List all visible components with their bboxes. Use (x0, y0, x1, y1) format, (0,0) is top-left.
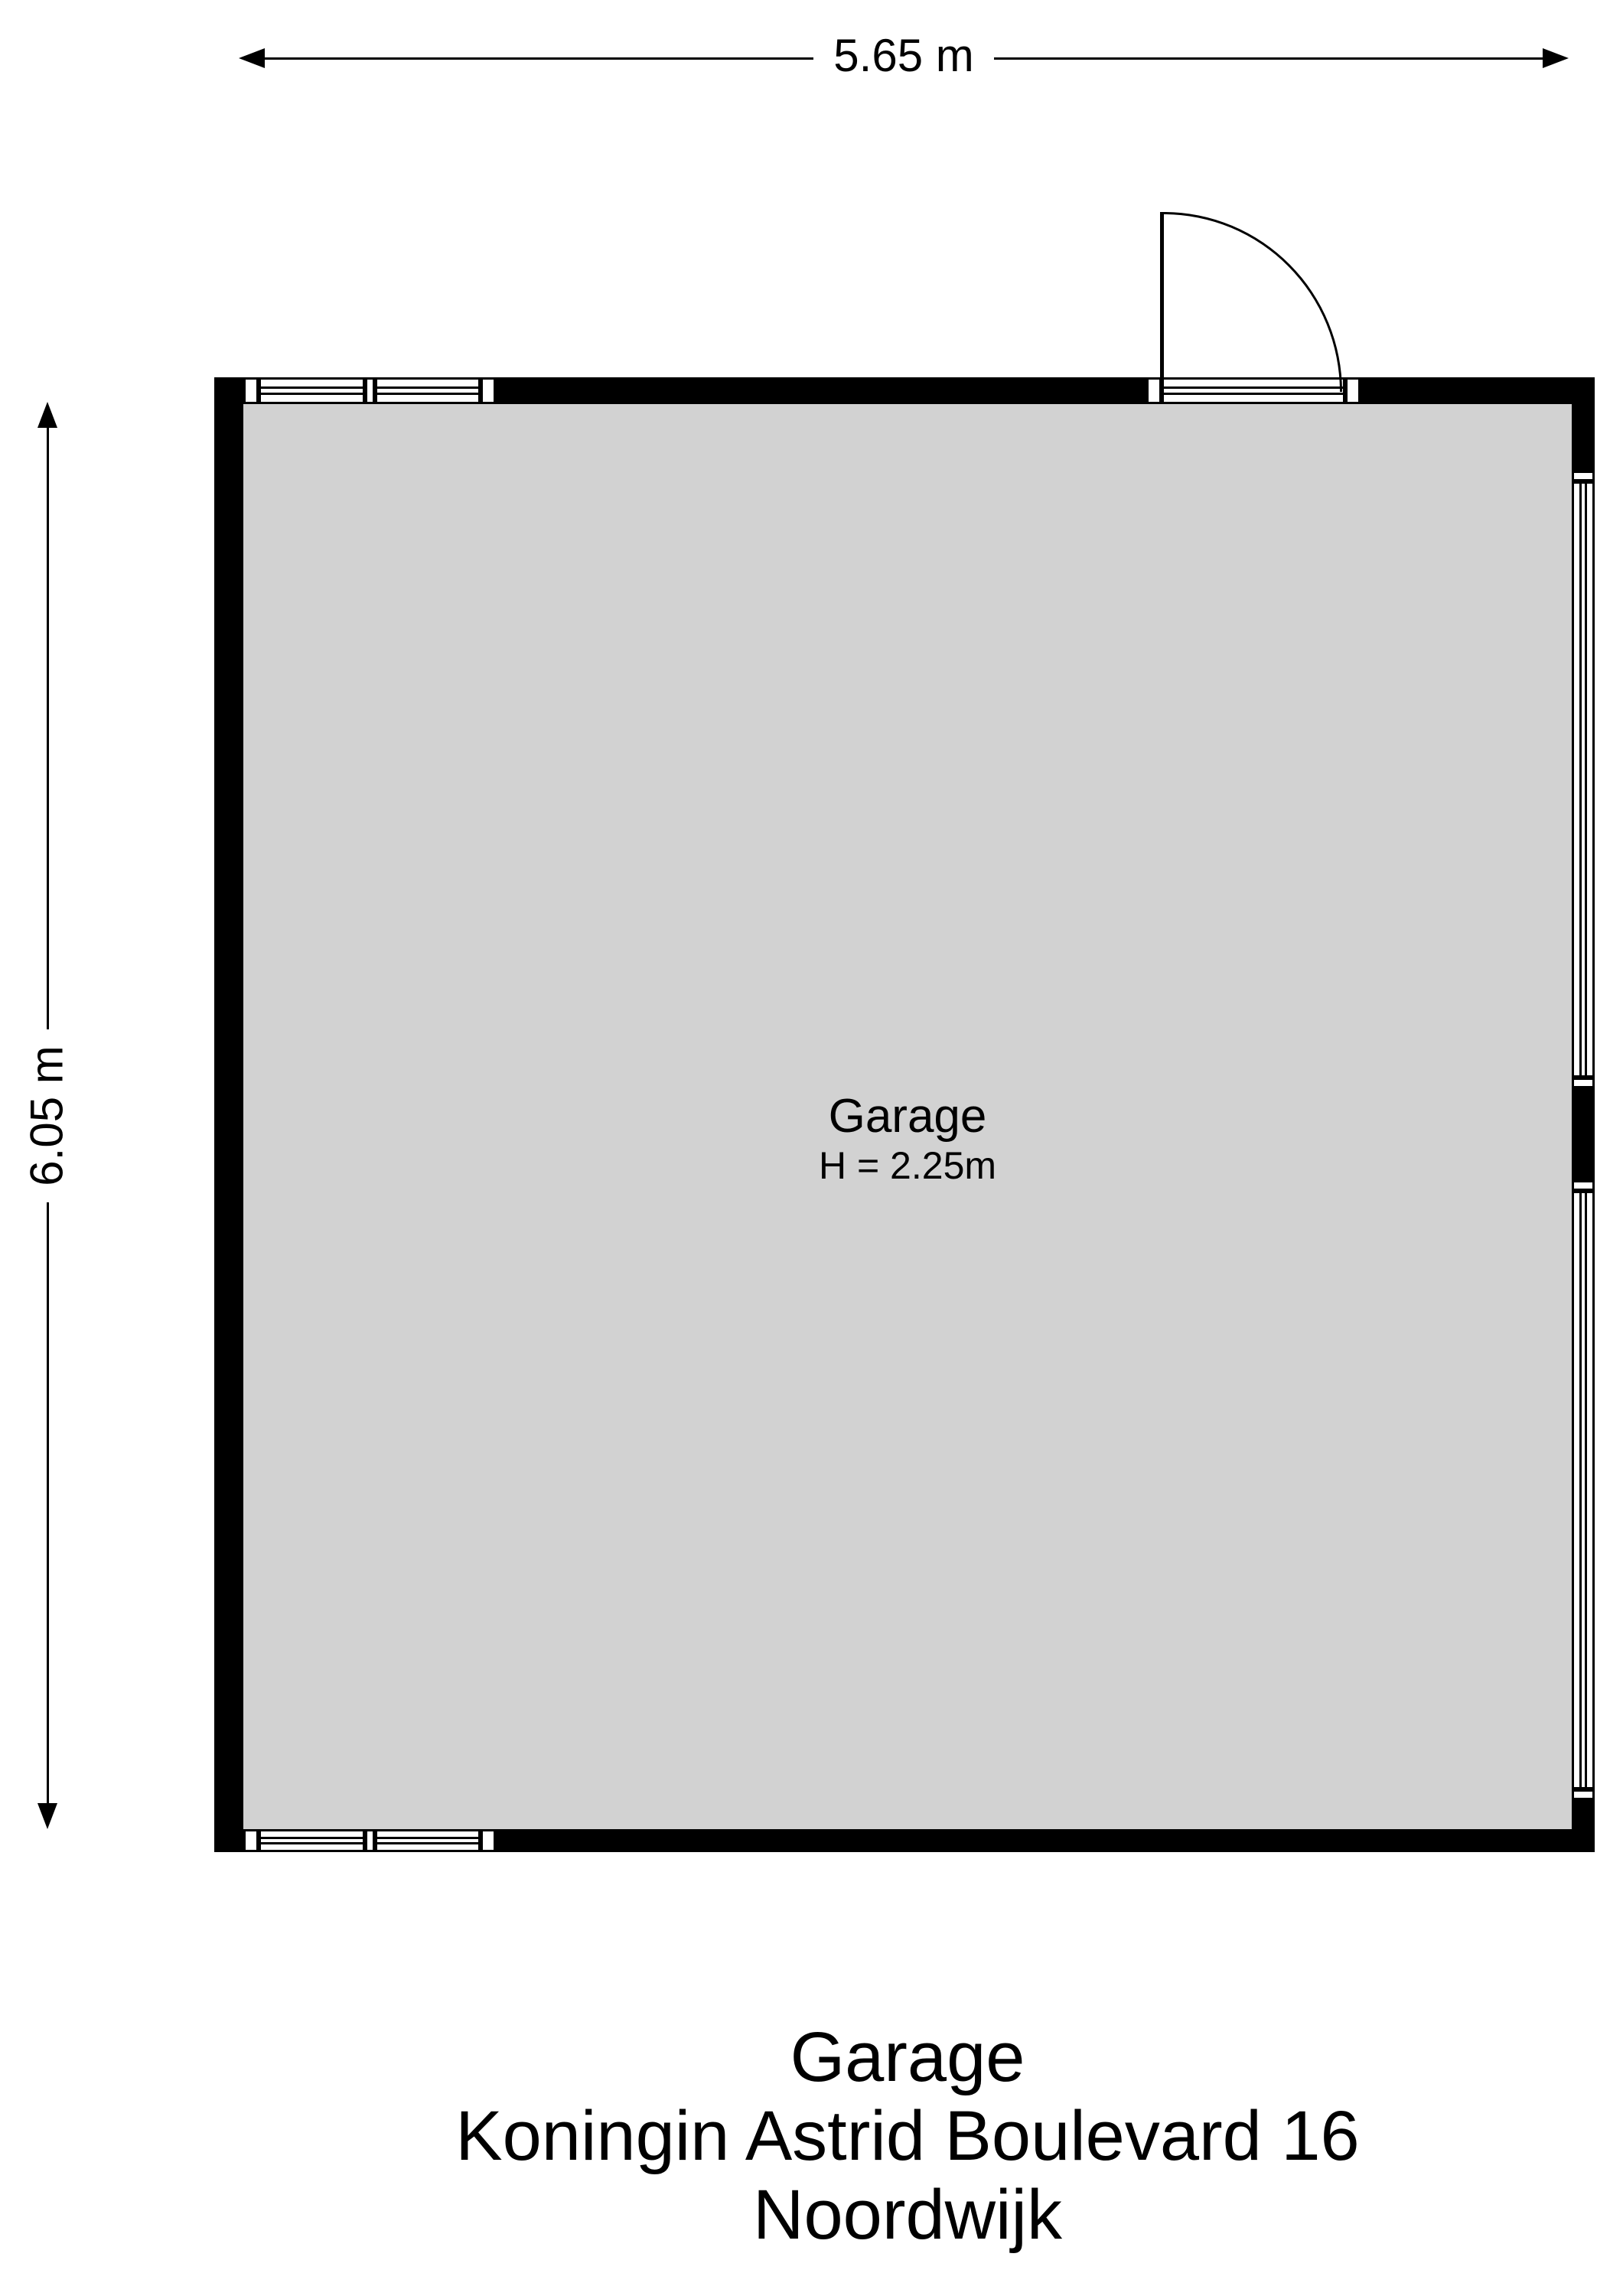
window-frame (481, 377, 496, 404)
dimension-height-label-wrap: 6.05 m (15, 1029, 80, 1202)
dimension-width-label: 5.65 m (833, 33, 973, 83)
window-glass (259, 377, 365, 404)
door-frame (1345, 377, 1361, 404)
wall-right-segment-top (1572, 377, 1595, 471)
arrowhead-left-icon (239, 48, 265, 68)
plan-title-block: Garage Koningin Astrid Boulevard 16 Noor… (104, 2018, 1623, 2255)
dimension-line (47, 1202, 49, 1804)
window-mullion (365, 1829, 375, 1852)
dimension-height: 6.05 m (15, 402, 80, 1829)
arrowhead-up-icon (37, 402, 57, 428)
plan-address: Koningin Astrid Boulevard 16 (104, 2097, 1623, 2176)
floorplan-canvas: 5.65 m 6.05 m (0, 0, 1623, 2296)
dimension-height-label: 6.05 m (24, 1045, 70, 1186)
window-frame (243, 377, 259, 404)
window-frame (1572, 1078, 1595, 1088)
arrowhead-down-icon (37, 1803, 57, 1829)
wall-bottom (496, 1829, 1595, 1852)
window-glass (1572, 481, 1595, 1078)
window-right-upper (1572, 471, 1595, 1088)
window-frame (1572, 1789, 1595, 1800)
window-glass (375, 377, 481, 404)
window-glass (1572, 1191, 1595, 1789)
window-top (243, 377, 496, 404)
arrowhead-right-icon (1543, 48, 1569, 68)
window-mullion (365, 377, 375, 404)
window-right-lower (1572, 1180, 1595, 1800)
room-name: Garage (142, 1092, 1623, 1141)
window-bottom (243, 1829, 496, 1852)
dimension-line (47, 428, 49, 1029)
window-frame (1572, 471, 1595, 481)
door-swing-arc-icon (1164, 212, 1342, 392)
room-label: Garage H = 2.25m (142, 1092, 1623, 1187)
plan-city: Noordwijk (104, 2176, 1623, 2255)
dimension-line (265, 57, 813, 60)
window-glass (259, 1829, 365, 1852)
wall-top-segment-left (496, 377, 1146, 404)
dimension-width: 5.65 m (239, 34, 1569, 82)
window-glass (375, 1829, 481, 1852)
window-frame (243, 1829, 259, 1852)
room-ceiling-height: H = 2.25m (142, 1144, 1623, 1187)
window-frame (481, 1829, 496, 1852)
wall-top-segment-right (1361, 377, 1595, 404)
plan-title: Garage (104, 2018, 1623, 2097)
dimension-line (994, 57, 1543, 60)
door-frame (1146, 377, 1162, 404)
